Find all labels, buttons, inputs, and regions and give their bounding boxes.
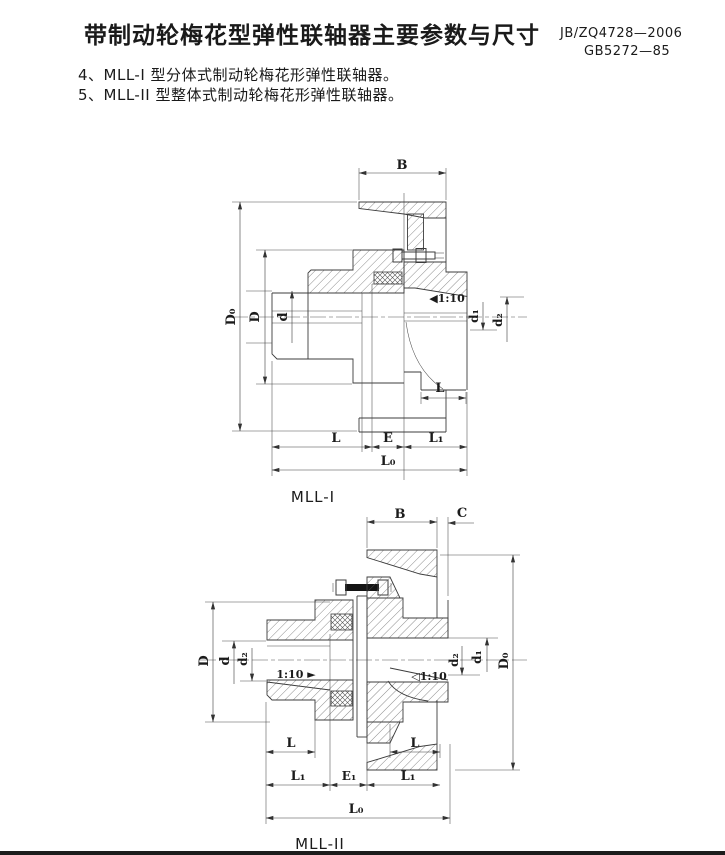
- standard-code-gb: GB5272—85: [584, 44, 670, 59]
- page-bottom-rule: [0, 851, 725, 855]
- right-hub-section-1: [404, 262, 467, 390]
- dim-label-d2-sub-left2: d₂: [236, 652, 250, 666]
- center-plate-2: [357, 596, 367, 737]
- dim-label-d2-sub1: d₂: [491, 313, 505, 327]
- dim-label-l-left2: L: [286, 736, 295, 751]
- taper-label-left2: 1:10 ►: [276, 668, 316, 681]
- dim-label-d1: d: [276, 312, 291, 321]
- left-flange-section-1: [308, 250, 404, 293]
- elastomer-spider-2-bottom: [331, 691, 352, 706]
- dim-label-l1-right2: L₁: [401, 769, 416, 784]
- note-item-4: 4、MLL-I 型分体式制动轮梅花形弹性联轴器。: [78, 64, 399, 85]
- figure-caption-mll-1: MLL-I: [291, 488, 335, 506]
- dim-label-c2: C: [457, 506, 467, 521]
- elastomer-spider-1: [374, 272, 402, 284]
- centerlines-1: [232, 193, 527, 480]
- dim-label-l1-left2: L₁: [291, 769, 306, 784]
- dim-label-do1: D₀: [224, 308, 239, 325]
- taper-label-right2: ◁1:10: [411, 670, 447, 683]
- dim-label-d1-sub1: d₁: [467, 309, 481, 323]
- dim-label-l-right1: L: [435, 381, 444, 396]
- dim-label-d2-sub-right2: d₂: [447, 653, 461, 667]
- dim-label-do2: D₀: [497, 652, 512, 669]
- dim-label-d1-sub2: d₁: [470, 650, 484, 664]
- dim-label-d-cap1: D: [248, 311, 263, 322]
- standard-code-jb: JB/ZQ4728—2006: [560, 26, 682, 41]
- dim-label-l0-2: L₀: [349, 802, 364, 817]
- dimensions-2: B C D d d₂ 1:10 ► ◁1:10 d₂ d₁ D₀: [197, 506, 520, 824]
- taper-label-1: ◀1:10: [429, 292, 465, 305]
- figure-mll-2: B C D d d₂ 1:10 ► ◁1:10 d₂ d₁ D₀: [195, 505, 530, 855]
- dim-label-b1: B: [397, 158, 408, 173]
- note-item-5: 5、MLL-II 型整体式制动轮梅花形弹性联轴器。: [78, 84, 403, 105]
- dim-label-l-right2: L: [410, 736, 419, 751]
- dim-label-d-cap2: D: [197, 655, 212, 666]
- dim-label-l0-1: L₀: [381, 454, 396, 469]
- dim-label-l1f: L: [331, 431, 340, 446]
- page-title: 带制动轮梅花型弹性联轴器主要参数与尺寸: [84, 16, 540, 50]
- document-page: { "header": { "title": "带制动轮梅花型弹性联轴器主要参数…: [0, 0, 725, 855]
- dim-label-l1-sub1: L₁: [429, 431, 444, 446]
- dim-label-d2: d: [218, 656, 233, 665]
- dim-label-b2: B: [395, 507, 406, 522]
- dim-label-e1-2: E₁: [342, 769, 356, 783]
- elastomer-spider-2-top: [331, 614, 352, 630]
- dim-label-e1f: E: [383, 431, 393, 446]
- figure-mll-1: B D₀ D d ◀1:10 d₁ d₂ L L E: [185, 150, 540, 515]
